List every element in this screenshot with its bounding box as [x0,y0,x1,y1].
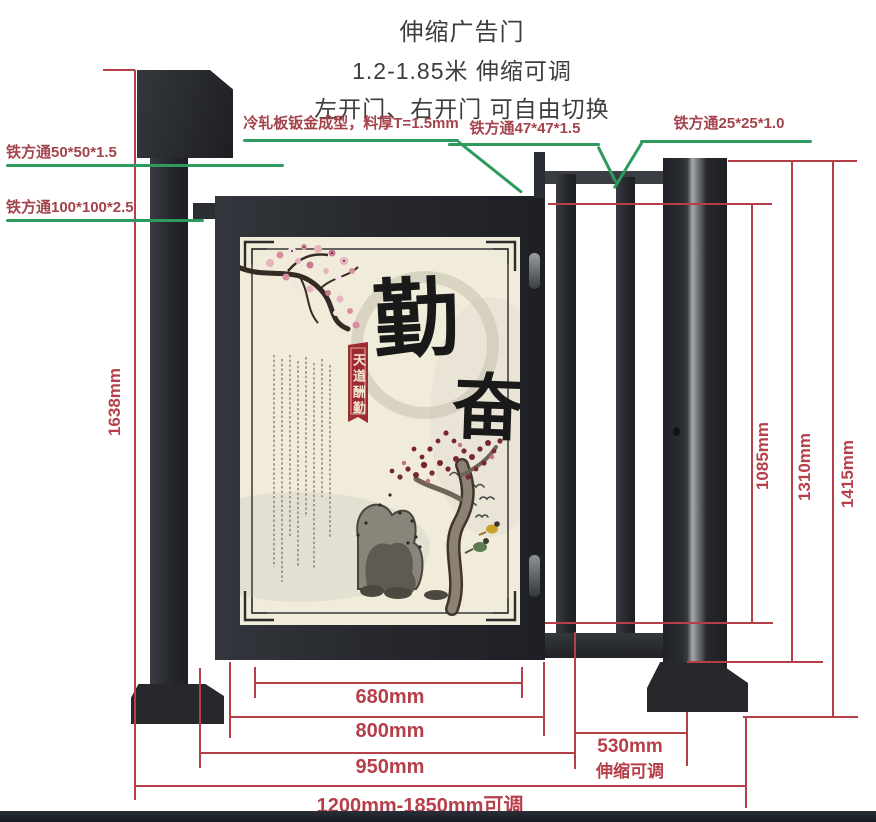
dim-fence-height: 1310mm [795,427,817,507]
dimension-line-1085 [751,204,753,624]
dim-door-width: 800mm [320,720,460,743]
dimension-line-680 [255,682,523,684]
callout-tube-25: 铁方通25*25*1.0 [648,112,810,133]
left-post-base [131,684,224,724]
right-post-base [647,662,748,712]
dimension-line-950 [200,752,576,754]
fence-bottom-rail [545,633,665,658]
page-title: 伸缩广告门 [102,12,822,47]
dim-ad-panel-width: 680mm [320,686,460,709]
hinge-bracket [193,203,217,219]
calligraphy-fen: 奋 [451,364,520,451]
door-handle [529,253,540,289]
door-edge-cap [534,152,545,198]
fence-bar-1 [556,174,576,658]
bottom-border-strip [0,811,876,822]
product-diagram: 伸缩广告门 1.2-1.85米 伸缩可调 左开门、右开门 可自由切换 [0,0,876,822]
left-post [150,158,188,690]
banner-text: 天道酬勤 [350,347,368,423]
dim-post-height: 1415mm [838,434,860,514]
dim-total-height: 1638mm [105,362,127,442]
dimension-line-800 [230,716,545,718]
calligraphy-qin: 勤 [370,267,461,372]
post-screw [673,427,680,436]
dimension-line-1415 [832,161,834,718]
callout-tube-47: 铁方通47*47*1.5 [450,117,600,138]
dimension-line-1638 [134,70,136,800]
right-post [663,158,727,668]
door-lock [529,555,540,597]
dim-door-section-width: 950mm [320,756,460,779]
motor-box [137,70,233,158]
dim-fence-inner-height: 1085mm [753,416,775,496]
fence-bar-2 [616,177,635,658]
callout-tube-50: 铁方通50*50*1.5 [6,141,117,162]
callout-cold-rolled-sheet: 冷轧板钣金成型，料厚T=1.5mm [243,112,459,133]
dimension-line-530 [575,732,688,734]
dim-telescopic-note: 伸缩可调 [572,757,688,782]
dimension-line-1310 [791,161,793,663]
dimension-line-total-range [134,785,746,787]
callout-tube-100: 铁方通100*100*2.5 [6,196,134,217]
dim-telescopic-width: 530mm [572,736,688,758]
ad-panel-artwork: 勤 奋 [240,237,520,625]
